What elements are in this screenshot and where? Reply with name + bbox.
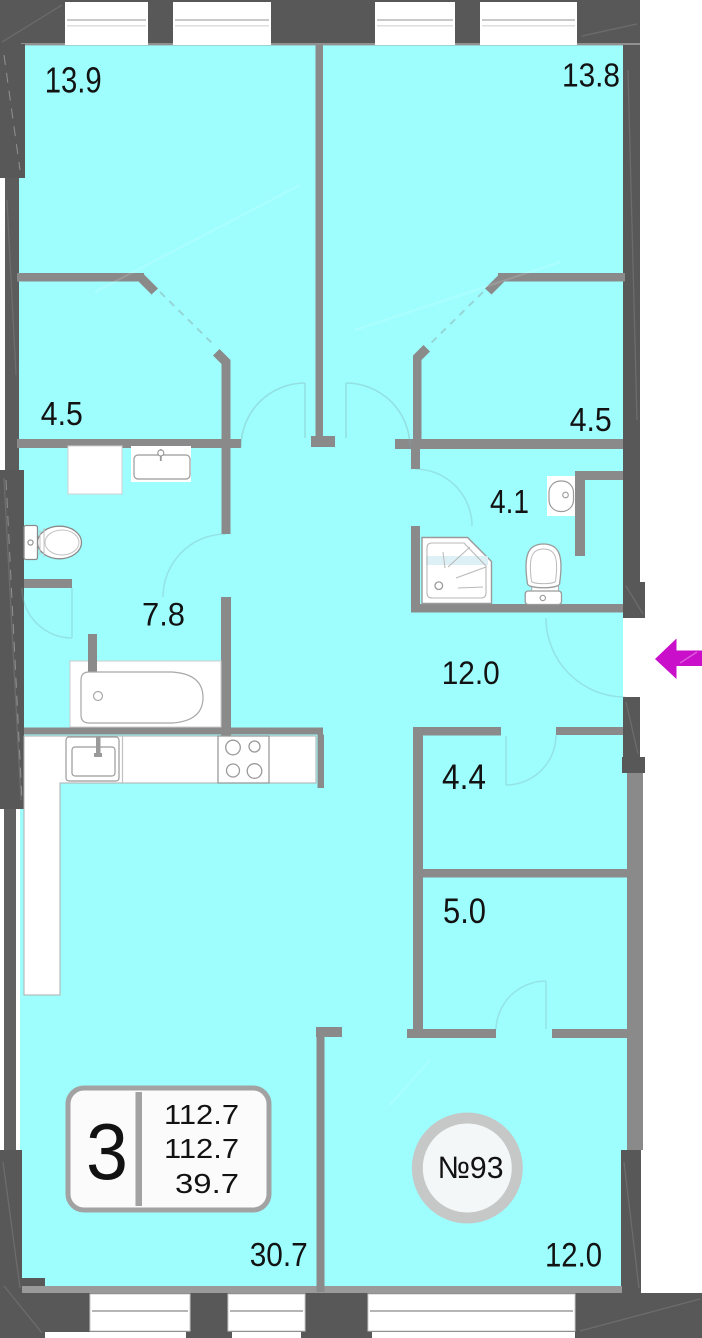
svg-text:30.7: 30.7 [250, 1236, 308, 1273]
svg-text:13.9: 13.9 [45, 60, 102, 101]
svg-text:№93: №93 [438, 1150, 504, 1185]
svg-text:112.7: 112.7 [164, 1099, 239, 1130]
svg-text:39.7: 39.7 [175, 1168, 239, 1199]
svg-text:12.0: 12.0 [442, 655, 500, 691]
svg-text:4.5: 4.5 [570, 402, 612, 439]
svg-text:4.5: 4.5 [41, 395, 83, 432]
svg-text:112.7: 112.7 [164, 1133, 239, 1164]
svg-text:4.4: 4.4 [442, 757, 486, 797]
svg-text:13.8: 13.8 [562, 57, 620, 94]
svg-text:5.0: 5.0 [443, 891, 486, 931]
svg-text:3: 3 [86, 1107, 128, 1196]
svg-text:4.1: 4.1 [490, 483, 529, 520]
svg-text:12.0: 12.0 [545, 1237, 602, 1275]
svg-text:7.8: 7.8 [142, 597, 185, 633]
